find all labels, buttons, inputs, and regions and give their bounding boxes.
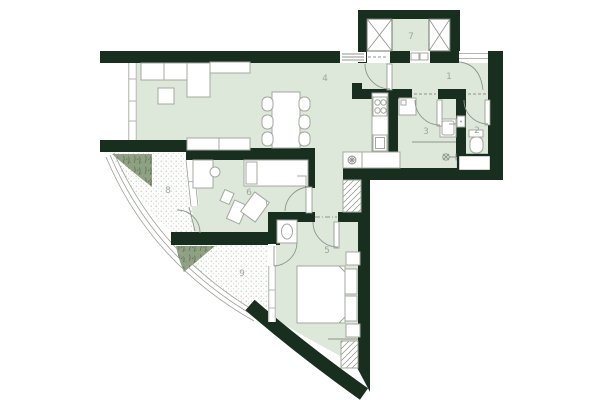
wardrobe-hatched [343,180,361,212]
double-bed [297,266,357,323]
top-wall-vent-strip [340,52,366,62]
wall-balcony-divider [171,232,280,245]
shelf-cabinet [210,62,250,73]
shaft-left-icon [367,19,392,51]
wall-top [100,51,340,63]
nightstand [346,324,360,337]
wall-hall-south-b [438,89,466,99]
wall-vestibule-right [450,10,460,51]
floor-plan-canvas: 1 2 3 4 5 6 7 8 9 [0,0,600,400]
room-label-6: 6 [246,188,252,198]
coffee-table [158,88,174,104]
bedroom5-window [268,244,276,322]
dresser [277,220,297,243]
washing-machine [399,98,416,115]
room-label-9: 9 [239,269,245,279]
desk-stool [210,167,220,177]
wall-vestibule-top [358,10,460,19]
room-label-4: 4 [322,74,328,84]
shaft-right-icon [429,19,450,51]
nightstand [346,252,360,265]
wall-vent-box [457,116,465,127]
room-label-8: 8 [165,186,171,196]
single-bed [244,160,308,186]
dining-table [272,92,300,148]
sofa-chaise [187,63,210,97]
room-label-3: 3 [423,127,429,137]
room-label-5: 5 [324,246,330,256]
extractor-symbol [348,156,356,164]
room-label-2: 2 [474,126,480,136]
room-label-1: 1 [446,72,452,82]
living-room-window [128,63,137,140]
pillow [345,269,357,294]
wall-living-balcony [100,140,193,152]
room-label-7: 7 [408,32,414,42]
floor-plan-drawing: 1 2 3 4 5 6 7 8 9 [0,0,600,400]
wall-vestibule-bottom-b [430,51,459,63]
wall-bath-wc [456,99,466,157]
wall-vestibule-bottom-a [390,51,410,63]
entrance-threshold [410,51,430,63]
hall-entry-door-gap [459,51,488,62]
duct-shaft [458,155,491,171]
pillow [345,296,357,321]
